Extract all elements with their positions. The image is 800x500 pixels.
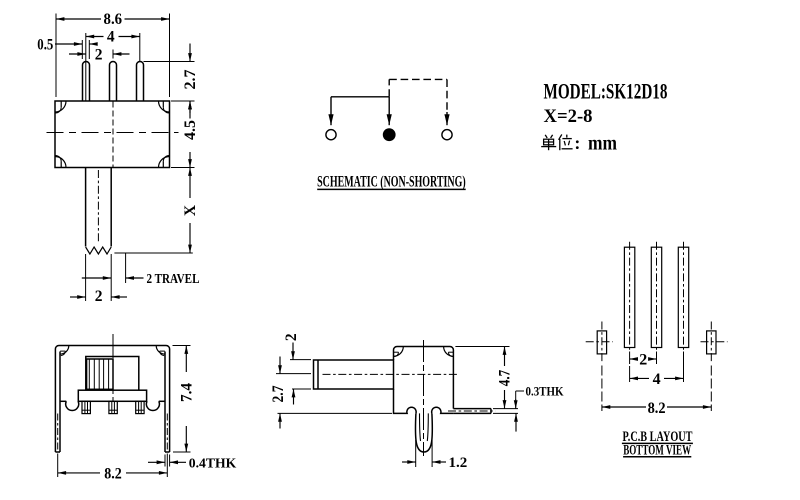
svg-text:BOTTOM VIEW: BOTTOM VIEW (623, 442, 691, 458)
svg-text:4: 4 (107, 29, 115, 46)
svg-text:X: X (182, 204, 199, 216)
svg-text:2: 2 (283, 333, 300, 341)
svg-text:8.2: 8.2 (648, 400, 666, 417)
svg-text:MODEL:SK12D18: MODEL:SK12D18 (544, 79, 668, 104)
svg-text:7.4: 7.4 (179, 383, 196, 402)
svg-text:2.7: 2.7 (270, 385, 287, 402)
svg-text:X=2-8: X=2-8 (544, 106, 593, 127)
svg-text:SCHEMATIC (NON-SHORTING): SCHEMATIC (NON-SHORTING) (317, 171, 466, 190)
svg-text:2: 2 (639, 352, 647, 369)
svg-text:mm: mm (588, 133, 617, 155)
svg-text:8.6: 8.6 (104, 11, 123, 28)
svg-text:1.2: 1.2 (449, 455, 468, 471)
svg-text:4: 4 (653, 371, 661, 388)
svg-text:2.7: 2.7 (182, 69, 199, 89)
svg-text:4.7: 4.7 (496, 370, 513, 387)
svg-text:8.2: 8.2 (104, 465, 122, 482)
svg-text:0.4THK: 0.4THK (189, 456, 237, 471)
svg-text:2 TRAVEL: 2 TRAVEL (147, 272, 200, 287)
svg-text:2: 2 (95, 47, 103, 64)
svg-text:4.5: 4.5 (182, 120, 199, 140)
svg-text:2: 2 (95, 288, 103, 305)
svg-text:0.3THK: 0.3THK (526, 384, 565, 399)
svg-text:0.5: 0.5 (37, 36, 53, 53)
